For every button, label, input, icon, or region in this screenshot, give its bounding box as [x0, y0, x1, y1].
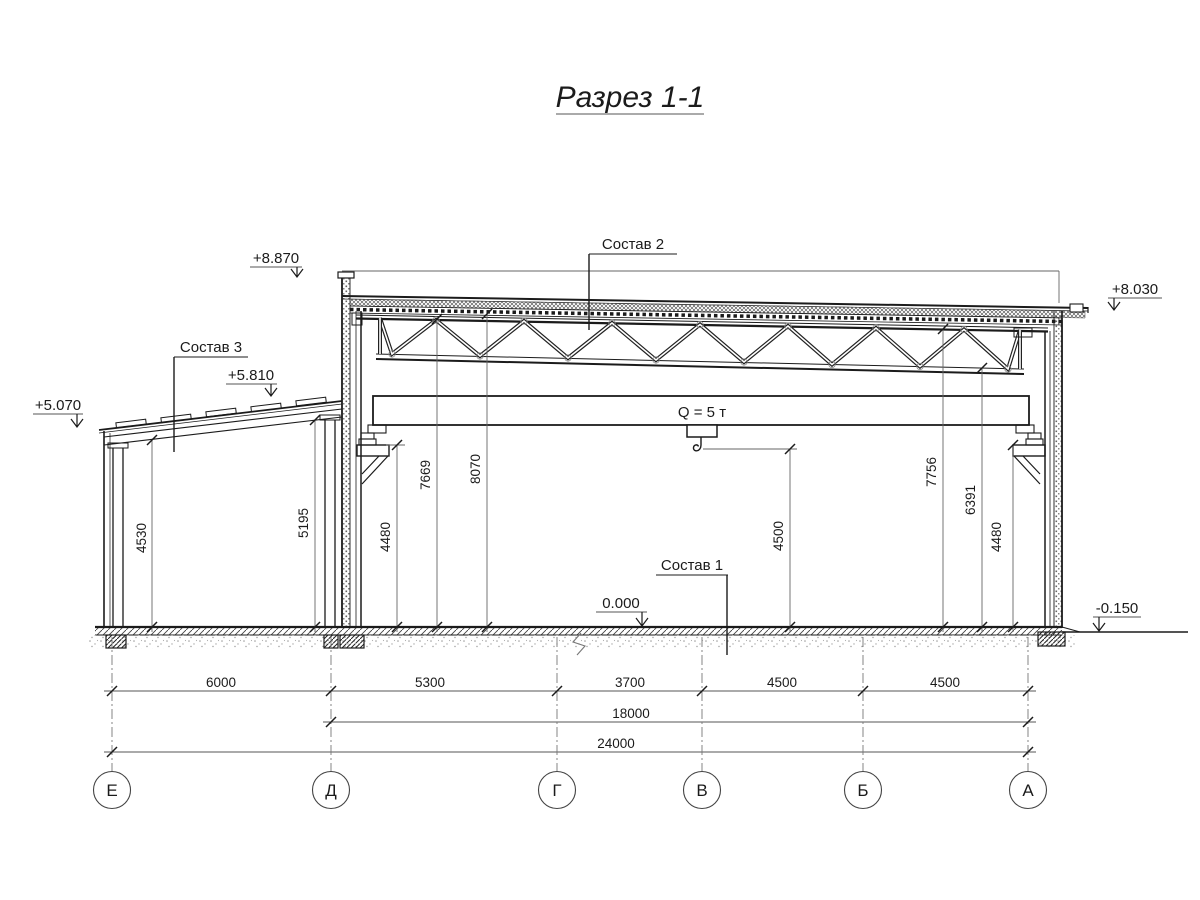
- leader-text: Состав 3: [180, 339, 242, 356]
- elevation-value: -0.150: [1096, 600, 1139, 617]
- axis-label-a: А: [1022, 781, 1034, 800]
- level-arrow-icon: [1108, 298, 1120, 310]
- dim-6000: 6000: [206, 675, 236, 690]
- dim-18000: 18000: [612, 706, 650, 721]
- crane-end-truck-left: [368, 425, 386, 433]
- crane-load-label: Q = 5 т: [678, 404, 726, 421]
- elevation-value: +5.810: [228, 367, 274, 384]
- dim-4480-left: 4480: [378, 522, 393, 552]
- axis-label-e: Е: [106, 781, 117, 800]
- elevation-floor: 0.000: [596, 595, 648, 626]
- crane-trolley: [687, 425, 717, 437]
- dim-4500-hook: 4500: [771, 521, 786, 551]
- annex-roof-beam: [104, 409, 342, 437]
- horizontal-dim-labels: 6000 5300 3700 4500 4500 18000 24000: [206, 675, 960, 751]
- dimension-rows: [104, 691, 1036, 752]
- crane-corbel-left: [357, 433, 389, 484]
- leader-text: Состав 2: [602, 236, 664, 253]
- axis-label-g: Г: [552, 781, 561, 800]
- level-arrow-icon: [1093, 617, 1105, 631]
- right-wall-hatch: [1054, 316, 1062, 628]
- elevation-annex-high: +5.810: [226, 367, 277, 396]
- dim-4500-ba: 4500: [930, 675, 960, 690]
- title-block: Разрез 1-1: [556, 81, 705, 114]
- drawing-sheet: Разрез 1-1: [0, 0, 1200, 900]
- dim-24000: 24000: [597, 736, 635, 751]
- section-drawing: Разрез 1-1: [0, 0, 1200, 900]
- vertical-dim-labels: 4530 5195 4480 7669 8070 4500 7756 6391 …: [134, 454, 1004, 553]
- vertical-dim-lines: [152, 314, 1013, 632]
- dim-4530: 4530: [134, 523, 149, 553]
- elevation-roof-right: +8.030: [1108, 281, 1162, 310]
- dim-8070: 8070: [468, 454, 483, 484]
- leader-text: Состав 1: [661, 557, 723, 574]
- axis-label-v: В: [696, 781, 707, 800]
- dim-3700: 3700: [615, 675, 645, 690]
- dim-4500-vb: 4500: [767, 675, 797, 690]
- dim-7669: 7669: [418, 460, 433, 490]
- elevation-annex-low: +5.070: [33, 397, 83, 427]
- axis-label-b: Б: [857, 781, 868, 800]
- elevation-ground: -0.150: [1093, 600, 1141, 631]
- floor: [88, 627, 1188, 655]
- dim-5195: 5195: [296, 508, 311, 538]
- elevation-parapet-left: +8.870: [250, 250, 303, 277]
- dim-6391: 6391: [963, 485, 978, 515]
- level-arrow-icon: [71, 414, 83, 427]
- leader-labels: Состав 2 Состав 3 Состав 1 Q = 5 т: [174, 236, 728, 655]
- floor-subbase: [88, 635, 1076, 649]
- dim-5300: 5300: [415, 675, 445, 690]
- elevation-value: 0.000: [602, 595, 640, 612]
- elevation-value: +5.070: [35, 397, 81, 414]
- elevation-value: +8.870: [253, 250, 299, 267]
- left-parapet-cap: [338, 272, 354, 278]
- left-wall-hatch: [342, 276, 350, 628]
- level-arrow-icon: [636, 612, 648, 626]
- level-arrow-icon: [265, 384, 277, 396]
- drawing-title: Разрез 1-1: [556, 81, 705, 114]
- elevation-value: +8.030: [1112, 281, 1158, 298]
- axes-grid: Е Д Г В Б А: [94, 637, 1047, 809]
- dim-7756: 7756: [924, 457, 939, 487]
- roof-edge-detail: [1070, 304, 1083, 312]
- crane-hook-icon: [693, 437, 701, 451]
- axis-label-d: Д: [325, 781, 337, 800]
- dim-4480-right: 4480: [989, 522, 1004, 552]
- floor-slab-hatch: [95, 628, 1062, 635]
- level-arrow-icon: [291, 267, 303, 277]
- crane-end-truck-right: [1016, 425, 1034, 433]
